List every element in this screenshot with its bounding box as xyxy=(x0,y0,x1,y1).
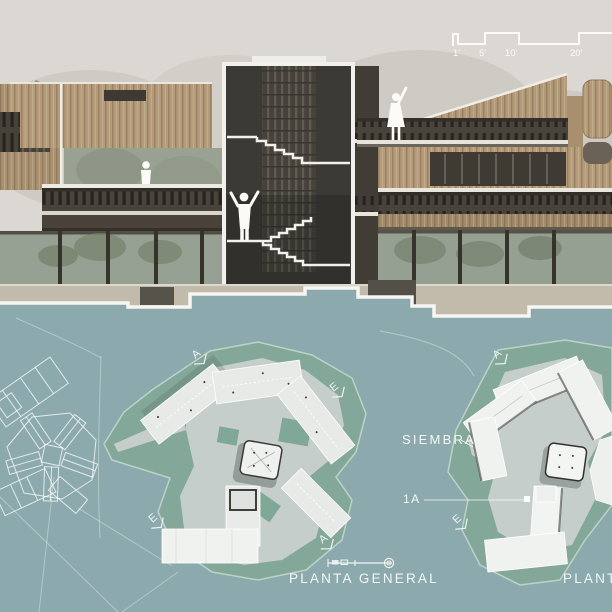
scale-tick-label: 5' xyxy=(479,48,486,59)
right-building xyxy=(357,74,612,286)
scale-tick-label: 1' xyxy=(453,48,460,59)
central-tower-plan-right xyxy=(539,442,587,490)
section-cut-room xyxy=(230,490,256,510)
window-grid xyxy=(430,152,566,186)
stair-tower-section xyxy=(224,56,353,290)
scale-tick-label: 20' xyxy=(570,48,583,59)
window-band xyxy=(104,90,146,101)
left-building xyxy=(0,80,222,287)
column xyxy=(58,231,62,287)
plan-caption: PLANTA GENERAL xyxy=(289,571,439,586)
section-elevation: 1' 5' 10' 20' xyxy=(0,0,612,320)
balcony-slab xyxy=(42,184,222,188)
board-canvas: 1' 5' 10' 20' xyxy=(0,0,612,612)
scale-tick-label: 10' xyxy=(505,48,518,59)
central-tower-plan xyxy=(232,439,283,489)
site-plan: A E E A A E xyxy=(0,288,612,612)
site-name-label: SIEMBRA xyxy=(402,432,476,447)
presentation-board: 1' 5' 10' 20' xyxy=(0,0,612,612)
unit-label: 1A xyxy=(403,492,421,506)
recessed-bay xyxy=(355,66,379,300)
plan-caption-right: PLANTA xyxy=(563,571,612,586)
unit-leader-dot xyxy=(524,496,530,502)
